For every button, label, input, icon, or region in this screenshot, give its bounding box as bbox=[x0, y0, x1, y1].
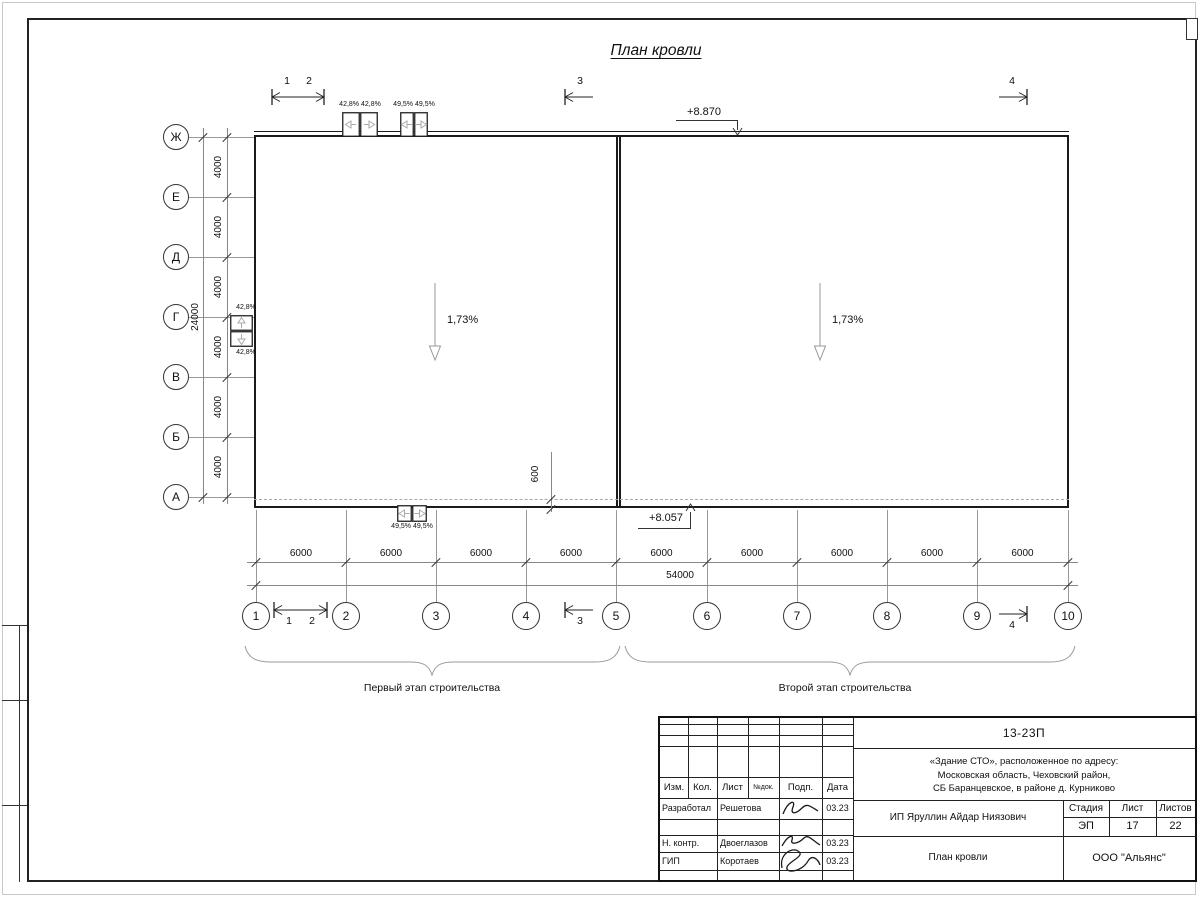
section-cut-mark bbox=[997, 88, 1030, 106]
roof-drain-box bbox=[397, 505, 412, 522]
col-segment-dim-line bbox=[247, 562, 1078, 563]
roof-overhang-dashed-line bbox=[254, 499, 1069, 500]
col-axis-line bbox=[616, 510, 617, 602]
col-axis-line bbox=[256, 510, 257, 602]
tb-name: Коротаев bbox=[720, 852, 778, 870]
slope-label-left: 1,73% bbox=[447, 314, 497, 326]
tb-project-line: СБ Баранцевское, в районе д. Курниково bbox=[853, 782, 1195, 796]
row-total-dim-line bbox=[203, 128, 204, 504]
row-axis-line bbox=[189, 437, 254, 438]
row-dim-label: 4000 bbox=[213, 147, 225, 187]
tb-doc-number: 13-23П bbox=[853, 718, 1195, 748]
tb-date: 03.23 bbox=[822, 852, 853, 870]
roof-drain-box bbox=[230, 331, 253, 347]
tb-project-address: «Здание СТО», расположенное по адресу: М… bbox=[853, 749, 1195, 800]
elevation-top-value: +8.870 bbox=[676, 106, 732, 118]
tb-project-line: Московская область, Чеховский район, bbox=[853, 769, 1195, 783]
sheet-title: План кровли bbox=[566, 42, 746, 60]
title-block: Изм. Кол. Лист №док. Подп. Дата Разработ… bbox=[658, 716, 1197, 882]
elevation-top-arrow-icon bbox=[732, 127, 743, 136]
side-stamp-line bbox=[2, 700, 27, 701]
section-label: 3 bbox=[571, 75, 589, 87]
section-cut-mark bbox=[563, 88, 596, 106]
tb-listov-label: Листов bbox=[1156, 800, 1195, 817]
tb-client: ИП Яруллин Айдар Ниязович bbox=[853, 800, 1063, 836]
roof-drain-box bbox=[400, 112, 414, 137]
row-axis-line bbox=[189, 377, 254, 378]
tb-list-label: Лист bbox=[1109, 800, 1156, 817]
row-axis-bubble: Д bbox=[163, 244, 189, 270]
col-axis-line bbox=[707, 510, 708, 602]
tb-header-data: Дата bbox=[822, 777, 853, 798]
col-axis-bubble: 8 bbox=[873, 602, 901, 630]
col-axis-bubble: 9 bbox=[963, 602, 991, 630]
section-label: 1 bbox=[278, 75, 296, 87]
tb-header-ndok: №док. bbox=[748, 777, 779, 798]
section-label: 4 bbox=[1003, 75, 1021, 87]
elevation-bottom-arrow-icon bbox=[685, 503, 696, 512]
tb-role: Разработал bbox=[662, 798, 717, 819]
tb-date: 03.23 bbox=[822, 798, 853, 819]
tb-stage-label: Стадия bbox=[1063, 800, 1109, 817]
stage-braces bbox=[240, 640, 1090, 682]
col-dim-label: 6000 bbox=[276, 548, 326, 559]
row-axis-bubble: В bbox=[163, 364, 189, 390]
section-label: 2 bbox=[300, 75, 318, 87]
slope-arrow-left bbox=[427, 283, 443, 363]
col-axis-bubble: 1 bbox=[242, 602, 270, 630]
drain-slope-label: 49,5% 49,5% bbox=[382, 523, 442, 530]
drain-slope-label: 42,8% bbox=[225, 349, 267, 356]
row-axis-line bbox=[189, 257, 254, 258]
tb-sheet-name: План кровли bbox=[853, 836, 1063, 880]
row-axis-bubble: Г bbox=[163, 304, 189, 330]
tb-date: 03.23 bbox=[822, 835, 853, 852]
col-axis-line bbox=[1068, 510, 1069, 602]
tb-header-kol: Кол. bbox=[688, 777, 717, 798]
row-axis-bubble: Б bbox=[163, 424, 189, 450]
row-axis-line bbox=[189, 197, 254, 198]
signature-icon bbox=[776, 844, 824, 880]
offset-dim-label: 600 bbox=[530, 454, 542, 494]
col-total-label: 54000 bbox=[650, 570, 710, 581]
offset-dim-line bbox=[551, 452, 552, 512]
tb-role: Н. контр. bbox=[662, 835, 717, 852]
tb-role: ГИП bbox=[662, 852, 717, 870]
drawing-sheet: План кровли 1,73% 1,73% +8.870 +8.057 Пе… bbox=[0, 0, 1200, 900]
roof-stage-joint bbox=[616, 137, 621, 506]
elevation-bottom-leader bbox=[638, 528, 691, 529]
tb-project-line: «Здание СТО», расположенное по адресу: bbox=[853, 755, 1195, 769]
tb-header-izm: Изм. bbox=[660, 777, 688, 798]
tb-name: Решетова bbox=[720, 798, 778, 819]
row-dim-label: 4000 bbox=[213, 387, 225, 427]
roof-drain-box bbox=[360, 112, 378, 137]
row-total-label: 24000 bbox=[190, 297, 202, 337]
col-dim-label: 6000 bbox=[998, 548, 1048, 559]
row-axis-line bbox=[189, 497, 254, 498]
section-cut-mark bbox=[294, 88, 327, 106]
slope-arrow-right bbox=[812, 283, 828, 363]
roof-drain-box bbox=[414, 112, 428, 137]
tb-stage-value: ЭП bbox=[1063, 817, 1109, 836]
drain-slope-label: 42,8% bbox=[225, 304, 267, 311]
row-axis-line bbox=[189, 137, 254, 138]
row-axis-bubble: А bbox=[163, 484, 189, 510]
col-axis-bubble: 5 bbox=[602, 602, 630, 630]
slope-label-right: 1,73% bbox=[832, 314, 882, 326]
section-label: 2 bbox=[303, 615, 321, 627]
stage-first-label: Первый этап строительства bbox=[332, 682, 532, 694]
col-axis-line bbox=[526, 510, 527, 602]
roof-drain-box bbox=[342, 112, 360, 137]
row-axis-bubble: Ж bbox=[163, 124, 189, 150]
col-axis-bubble: 2 bbox=[332, 602, 360, 630]
col-axis-bubble: 4 bbox=[512, 602, 540, 630]
col-axis-bubble: 6 bbox=[693, 602, 721, 630]
elevation-top-leader bbox=[676, 120, 738, 121]
section-label: 3 bbox=[571, 615, 589, 627]
col-axis-line bbox=[977, 510, 978, 602]
side-stamp-line bbox=[19, 625, 20, 882]
tb-header-podp: Подп. bbox=[779, 777, 822, 798]
section-label: 1 bbox=[280, 615, 298, 627]
format-box bbox=[1186, 18, 1198, 40]
section-label: 4 bbox=[1003, 619, 1021, 631]
col-dim-label: 6000 bbox=[907, 548, 957, 559]
roof-outline bbox=[254, 135, 1069, 508]
col-total-dim-line bbox=[247, 585, 1078, 586]
tb-list-value: 17 bbox=[1109, 817, 1156, 836]
side-stamp-line bbox=[2, 625, 27, 626]
row-dim-label: 4000 bbox=[213, 207, 225, 247]
col-dim-label: 6000 bbox=[817, 548, 867, 559]
elevation-bottom-value: +8.057 bbox=[638, 512, 694, 524]
roof-drain-box bbox=[230, 315, 253, 331]
signature-icon bbox=[780, 798, 822, 820]
col-axis-line bbox=[887, 510, 888, 602]
drain-slope-label: 42,8% 42,8% bbox=[330, 101, 390, 108]
col-axis-line bbox=[346, 510, 347, 602]
drain-slope-label: 49,5% 49,5% bbox=[384, 101, 444, 108]
col-axis-bubble: 3 bbox=[422, 602, 450, 630]
col-dim-label: 6000 bbox=[456, 548, 506, 559]
col-axis-bubble: 7 bbox=[783, 602, 811, 630]
tb-name: Двоеглазов bbox=[720, 835, 778, 852]
col-dim-label: 6000 bbox=[727, 548, 777, 559]
tb-listov-value: 22 bbox=[1156, 817, 1195, 836]
col-axis-bubble: 10 bbox=[1054, 602, 1082, 630]
row-axis-bubble: Е bbox=[163, 184, 189, 210]
elevation-bottom-leader bbox=[690, 512, 691, 529]
tb-company: ООО "Альянс" bbox=[1063, 836, 1195, 880]
row-dim-label: 4000 bbox=[213, 267, 225, 307]
row-dim-label: 4000 bbox=[213, 447, 225, 487]
col-dim-label: 6000 bbox=[546, 548, 596, 559]
tb-header-list: Лист bbox=[717, 777, 748, 798]
roof-drain-box bbox=[412, 505, 427, 522]
row-dim-label: 4000 bbox=[213, 327, 225, 367]
side-stamp-line bbox=[2, 805, 27, 806]
col-dim-label: 6000 bbox=[366, 548, 416, 559]
col-dim-label: 6000 bbox=[637, 548, 687, 559]
stage-second-label: Второй этап строительства bbox=[745, 682, 945, 694]
col-axis-line bbox=[797, 510, 798, 602]
